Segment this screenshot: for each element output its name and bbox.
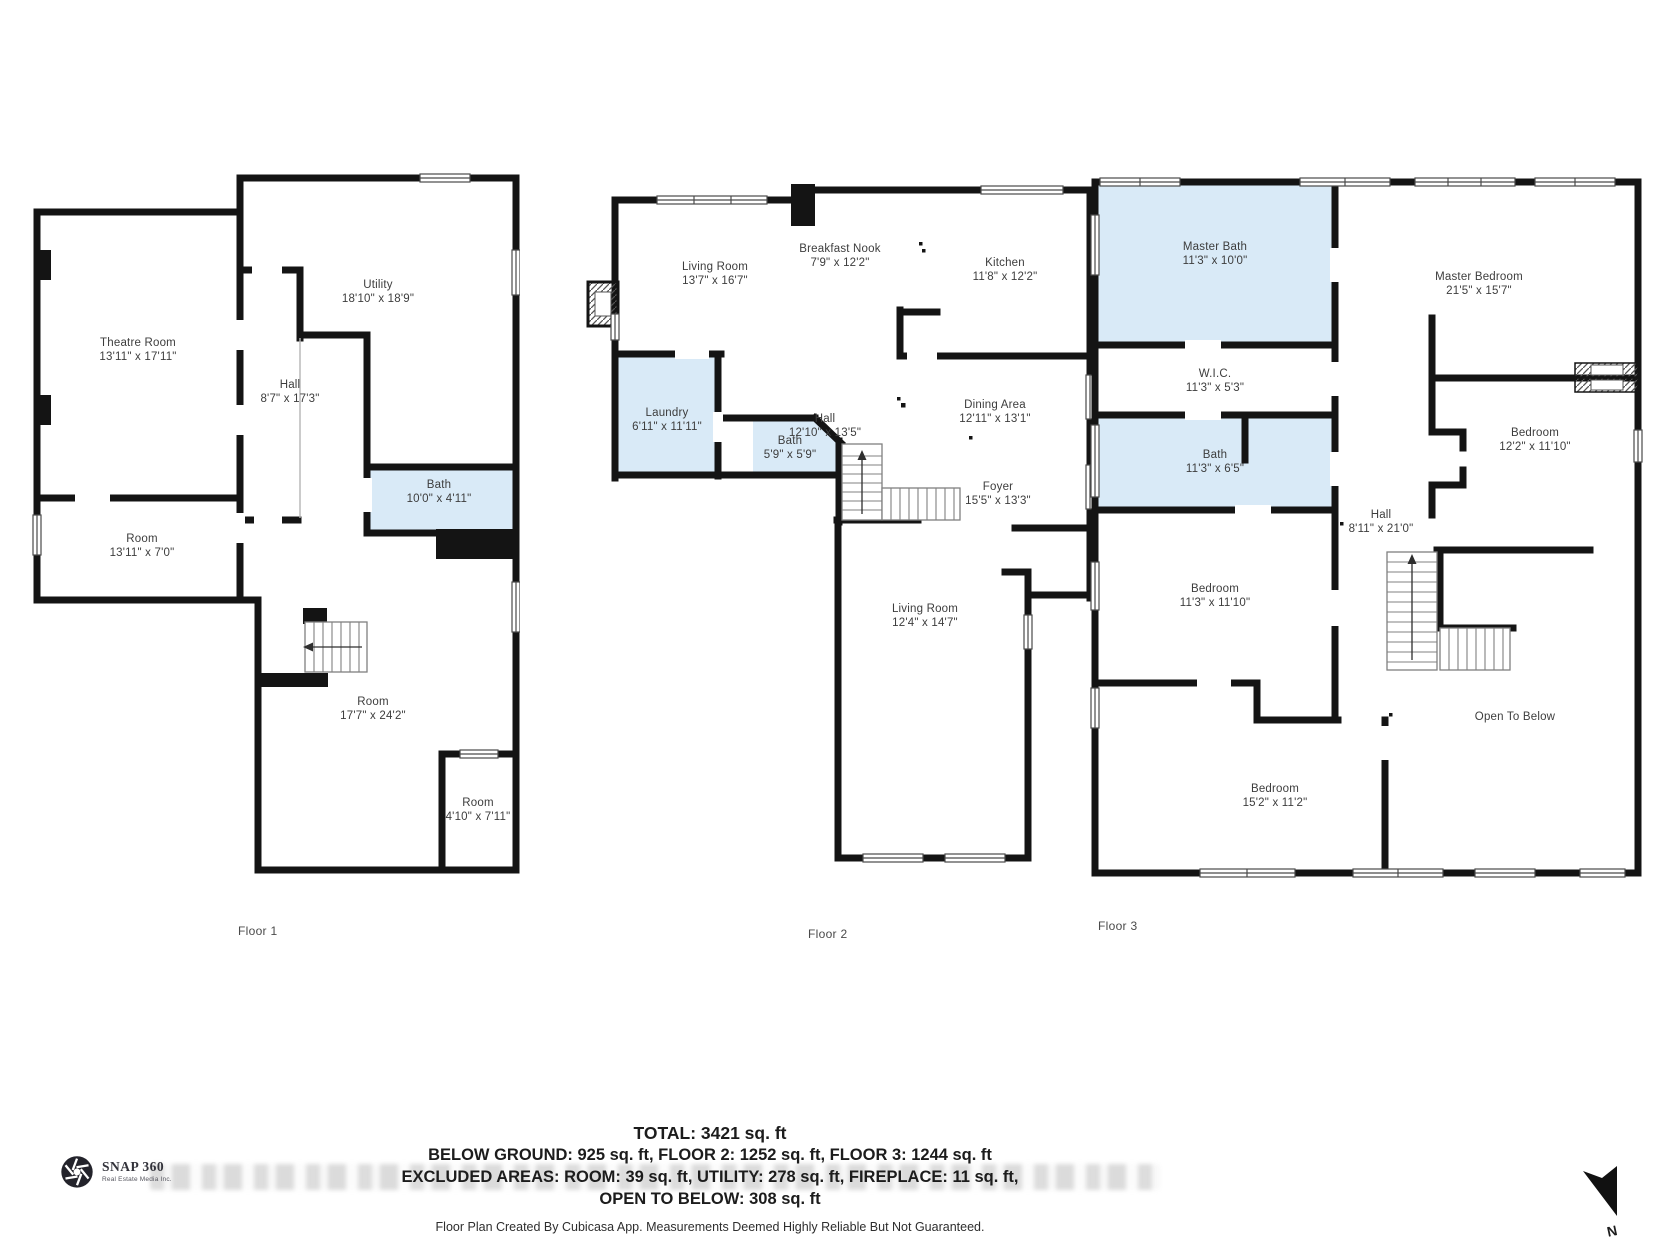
svg-text:6'11" x 11'11": 6'11" x 11'11" — [632, 421, 702, 433]
svg-text:11'3" x 10'0": 11'3" x 10'0" — [1183, 255, 1248, 267]
svg-text:13'11" x 7'0": 13'11" x 7'0" — [110, 547, 175, 559]
svg-text:15'5" x 13'3": 15'5" x 13'3" — [965, 495, 1031, 507]
floor-3-label: Floor 3 — [1098, 919, 1137, 933]
svg-text:12'11" x 13'1": 12'11" x 13'1" — [959, 413, 1030, 425]
svg-text:15'2" x 11'2": 15'2" x 11'2" — [1243, 797, 1308, 809]
room-label-foyer: Foyer — [983, 481, 1013, 493]
room-label-wic: W.I.C. — [1199, 368, 1232, 380]
room-label-kitchen: Kitchen — [985, 257, 1025, 269]
svg-text:10'0" x 4'11": 10'0" x 4'11" — [407, 493, 472, 505]
room-label-living-room-top: Living Room — [682, 261, 748, 273]
excluded-areas-text: EXCLUDED AREAS: ROOM: 39 sq. ft, UTILITY… — [110, 1166, 1310, 1188]
room-label-room-c: Room — [462, 797, 493, 809]
room-label-hall-f1: Hall — [280, 379, 301, 391]
room-label-dining-area: Dining Area — [964, 399, 1026, 411]
logo-tagline-text: Real Estate Media Inc. — [102, 1176, 172, 1183]
total-area-text: TOTAL: 3421 sq. ft — [110, 1122, 1310, 1144]
room-label-breakfast-nook: Breakfast Nook — [799, 243, 880, 255]
floor-2-plan: Living Room 13'7" x 16'7" Breakfast Nook… — [585, 170, 1095, 870]
snap360-logo: SNAP 360 Real Estate Media Inc. — [58, 1150, 172, 1190]
north-label: N — [1605, 1222, 1618, 1240]
svg-text:11'3" x 6'5": 11'3" x 6'5" — [1186, 463, 1244, 475]
room-label-room-a: Room — [126, 533, 157, 545]
floor3-door-dots — [1340, 522, 1393, 717]
svg-text:17'7" x 24'2": 17'7" x 24'2" — [340, 710, 406, 722]
floor2-door-dots — [897, 242, 973, 440]
room-label-hall-f3: Hall — [1371, 509, 1392, 521]
floor2-windows — [611, 186, 1094, 862]
floor-2-label: Floor 2 — [808, 927, 847, 941]
north-arrow-glyph — [1583, 1166, 1617, 1216]
credit-line: Floor Plan Created By Cubicasa App. Meas… — [110, 1220, 1310, 1234]
svg-text:11'3" x 11'10": 11'3" x 11'10" — [1180, 597, 1251, 609]
room-label-bedroom-w: Bedroom — [1191, 583, 1239, 595]
svg-text:13'11" x 17'11": 13'11" x 17'11" — [99, 351, 176, 363]
by-floor-area-text: BELOW GROUND: 925 sq. ft, FLOOR 2: 1252 … — [110, 1144, 1310, 1166]
svg-text:4'10" x 7'11": 4'10" x 7'11" — [446, 811, 511, 823]
floor-plan-page: Theatre Room 13'11" x 17'11" Utility 18'… — [0, 0, 1680, 1260]
floor3-fireplace-icon — [1575, 363, 1638, 392]
svg-text:8'11" x 21'0": 8'11" x 21'0" — [1349, 523, 1414, 535]
room-label-hall-f2: Hall — [815, 413, 836, 425]
svg-text:12'4" x 14'7": 12'4" x 14'7" — [892, 617, 958, 629]
logo-brand-text: SNAP 360 — [102, 1159, 172, 1175]
room-label-bedroom-s: Bedroom — [1251, 783, 1299, 795]
svg-text:12'2" x 11'10": 12'2" x 11'10" — [1499, 441, 1570, 453]
room-label-room-b: Room — [357, 696, 388, 708]
room-label-bath-f1: Bath — [427, 479, 451, 491]
svg-text:11'8" x 12'2": 11'8" x 12'2" — [973, 271, 1038, 283]
svg-text:13'7" x 16'7": 13'7" x 16'7" — [682, 275, 748, 287]
room-label-master-bath: Master Bath — [1183, 241, 1247, 253]
room-label-utility: Utility — [363, 279, 393, 291]
room-label-open-to-below: Open To Below — [1475, 711, 1556, 723]
room-label-theatre-room: Theatre Room — [100, 337, 176, 349]
svg-text:8'7" x 17'3": 8'7" x 17'3" — [260, 393, 319, 405]
area-summary: TOTAL: 3421 sq. ft BELOW GROUND: 925 sq.… — [110, 1122, 1310, 1210]
svg-text:11'3" x 5'3": 11'3" x 5'3" — [1186, 382, 1244, 394]
svg-text:7'9" x 12'2": 7'9" x 12'2" — [810, 257, 869, 269]
room-label-master-bedroom: Master Bedroom — [1435, 271, 1523, 283]
room-label-bedroom-ne: Bedroom — [1511, 427, 1559, 439]
svg-text:21'5" x 15'7": 21'5" x 15'7" — [1446, 285, 1512, 297]
room-label-bath-f2: Bath — [778, 435, 802, 447]
room-label-living-room-bottom: Living Room — [892, 603, 958, 615]
excluded-areas-text-2: OPEN TO BELOW: 308 sq. ft — [110, 1188, 1310, 1210]
svg-text:18'10" x 18'9": 18'10" x 18'9" — [342, 293, 414, 305]
floor-1-plan: Theatre Room 13'11" x 17'11" Utility 18'… — [30, 170, 520, 885]
floor1-stairs — [303, 622, 367, 672]
floor2-stairs — [842, 444, 960, 520]
north-arrow: N — [1565, 1155, 1645, 1255]
floor-1-label: Floor 1 — [238, 924, 277, 938]
room-label-bath-f3: Bath — [1203, 449, 1227, 461]
floor2-walls — [615, 190, 1090, 858]
floor-3-plan: Master Bath 11'3" x 10'0" Master Bedroom… — [1085, 170, 1645, 880]
aperture-icon — [58, 1150, 96, 1190]
svg-text:5'9" x 5'9": 5'9" x 5'9" — [764, 449, 816, 461]
floor3-stairs — [1387, 552, 1510, 670]
room-label-laundry: Laundry — [646, 407, 689, 419]
